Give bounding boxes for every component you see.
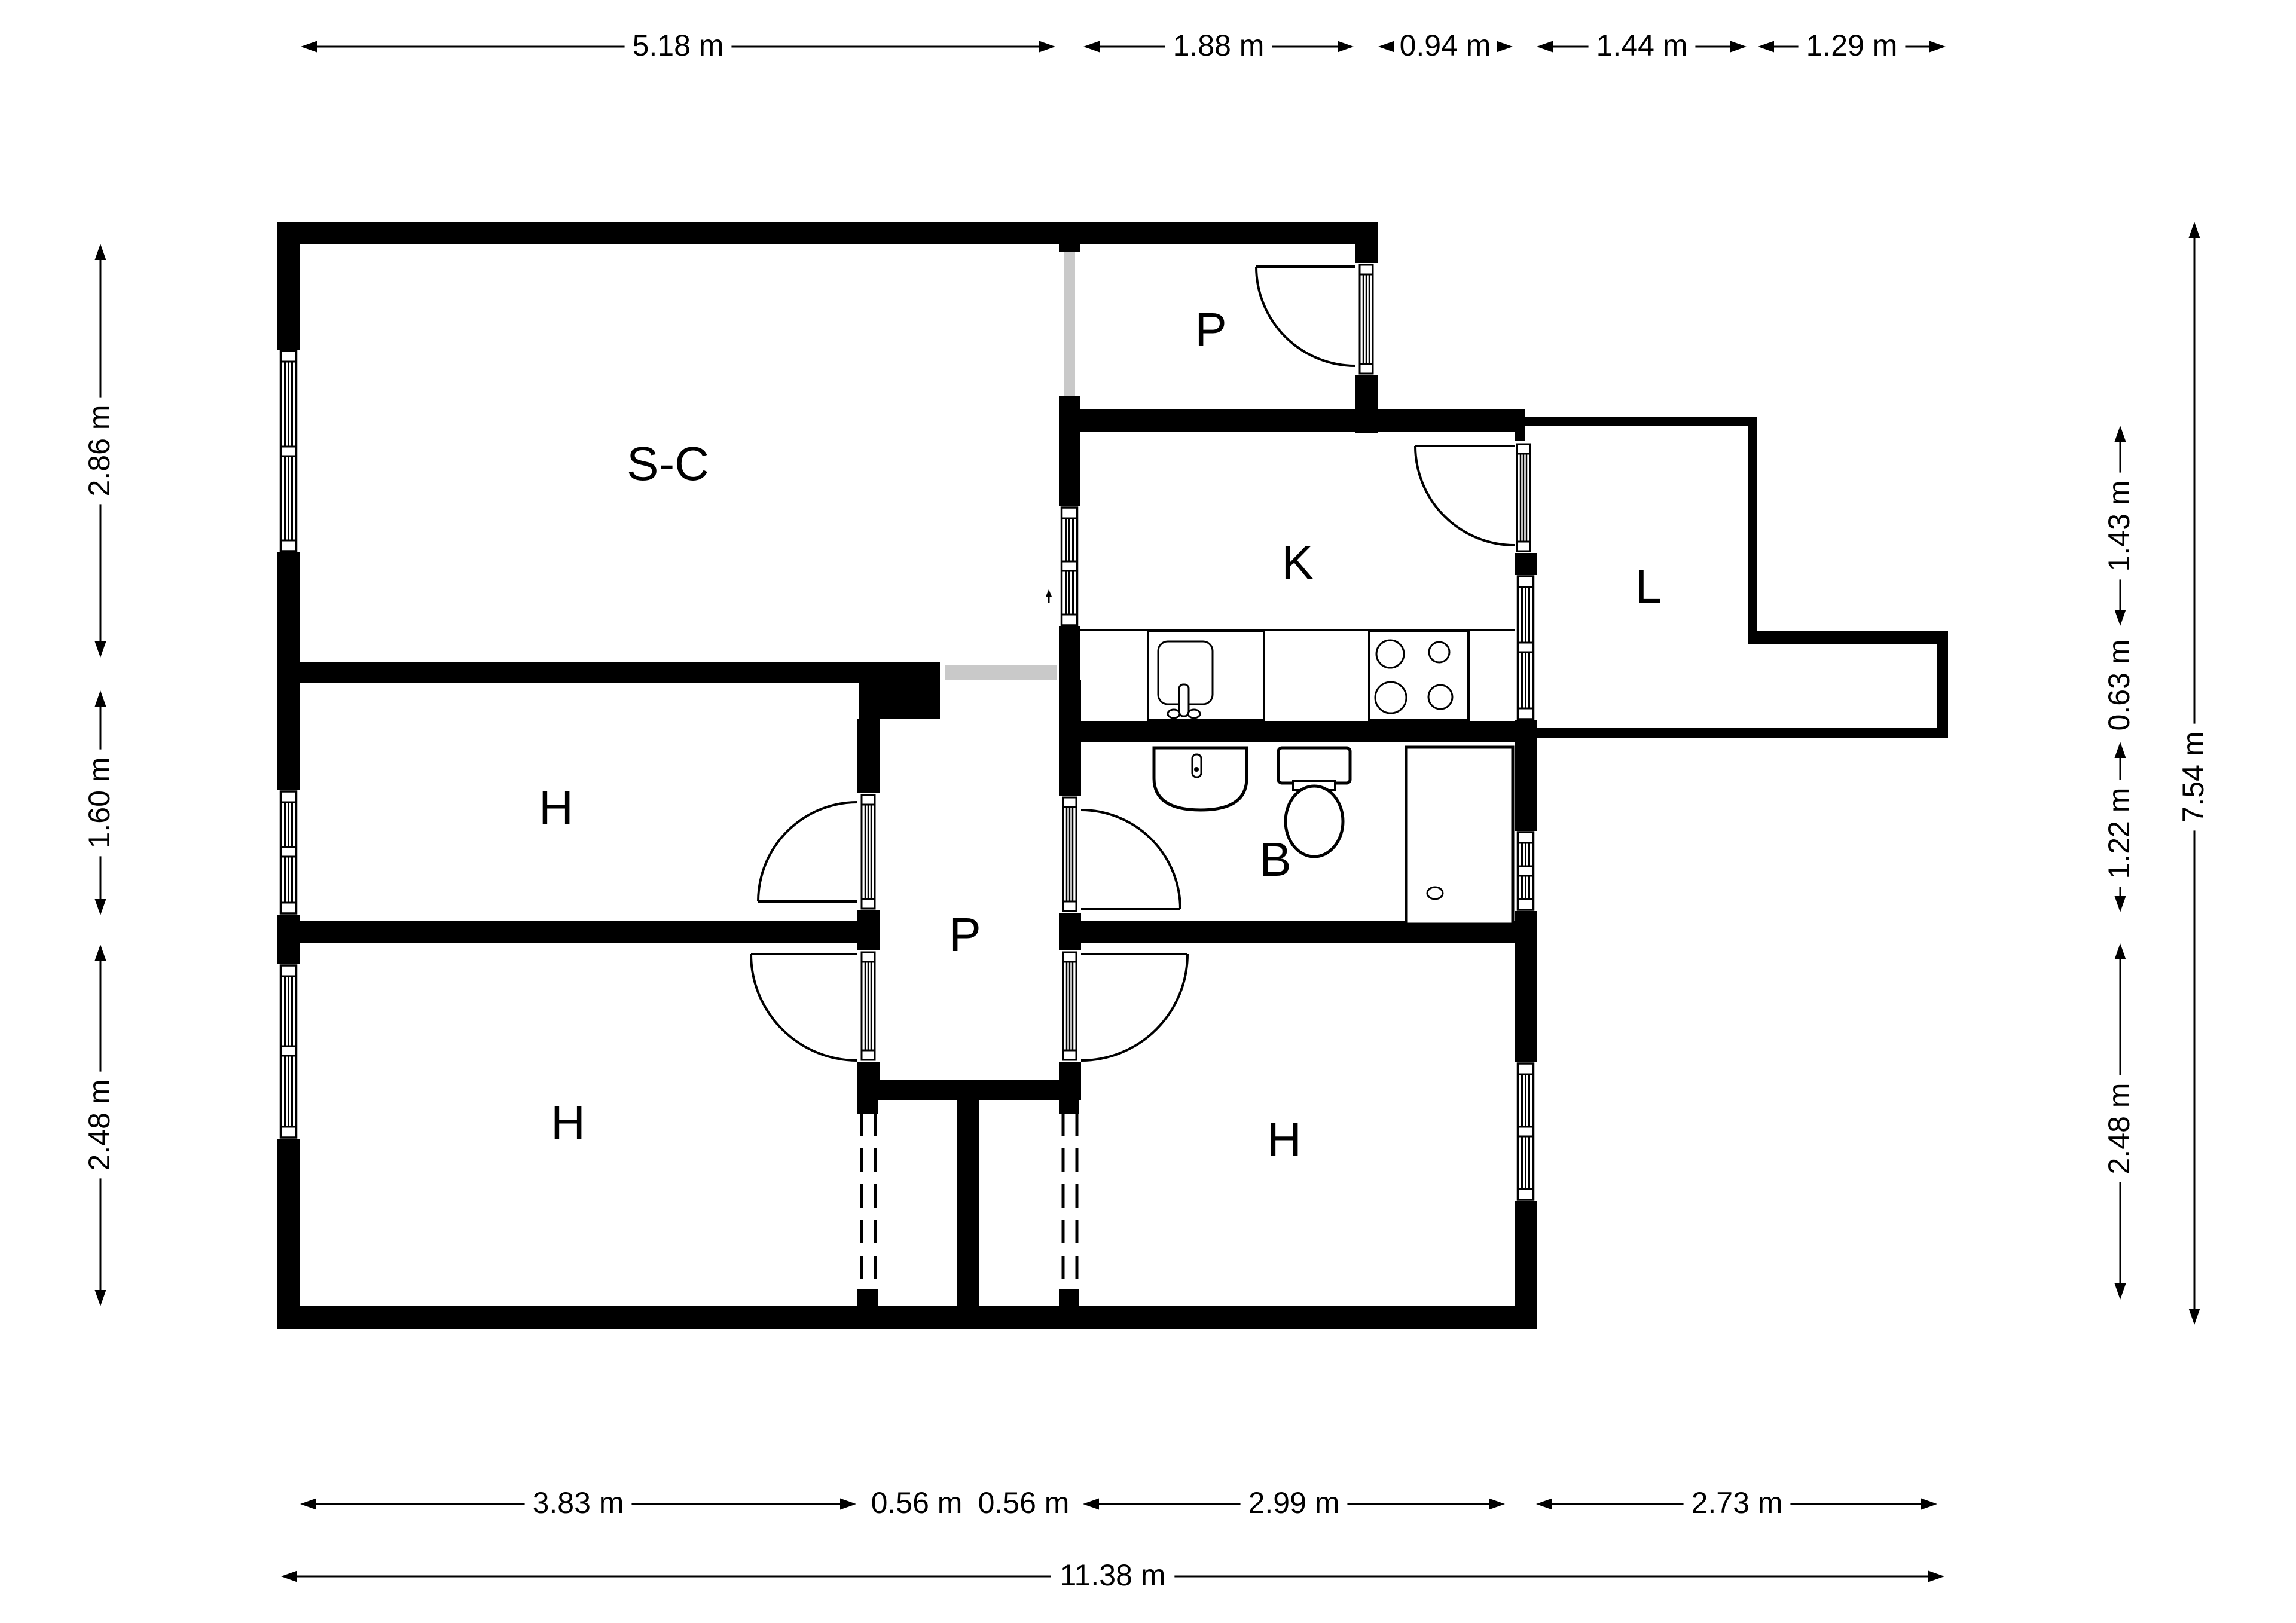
svg-text:1.88 m: 1.88 m [1173, 29, 1265, 62]
svg-text:2.48 m: 2.48 m [2102, 1083, 2136, 1175]
svg-text:H: H [539, 781, 573, 834]
svg-text:7.54 m: 7.54 m [2176, 732, 2210, 823]
svg-text:1.60 m: 1.60 m [83, 757, 116, 849]
svg-text:0.94 m: 0.94 m [1400, 29, 1491, 62]
svg-text:5.18 m: 5.18 m [633, 29, 724, 62]
svg-text:1.29 m: 1.29 m [1806, 29, 1898, 62]
svg-text:L: L [1635, 560, 1662, 613]
svg-text:H: H [1267, 1112, 1302, 1166]
svg-text:P: P [1195, 303, 1226, 356]
svg-text:0.56 m: 0.56 m [978, 1486, 1070, 1520]
svg-text:1.44 m: 1.44 m [1596, 29, 1688, 62]
svg-text:2.73 m: 2.73 m [1692, 1486, 1783, 1520]
svg-text:2.48 m: 2.48 m [83, 1080, 116, 1171]
svg-text:11.38 m: 11.38 m [1060, 1558, 1166, 1592]
svg-text:P: P [949, 908, 981, 961]
svg-text:1.43 m: 1.43 m [2102, 481, 2136, 572]
svg-text:3.83 m: 3.83 m [533, 1486, 624, 1520]
svg-text:H: H [551, 1096, 585, 1149]
svg-text:0.63 m: 0.63 m [2102, 640, 2136, 731]
svg-text:2.99 m: 2.99 m [1248, 1486, 1340, 1520]
svg-text:S-C: S-C [627, 437, 709, 490]
svg-text:0.56 m: 0.56 m [871, 1486, 963, 1520]
svg-text:B: B [1259, 833, 1291, 886]
svg-text:2.86 m: 2.86 m [83, 405, 116, 497]
svg-text:1.22 m: 1.22 m [2102, 788, 2136, 879]
svg-text:K: K [1281, 536, 1313, 589]
